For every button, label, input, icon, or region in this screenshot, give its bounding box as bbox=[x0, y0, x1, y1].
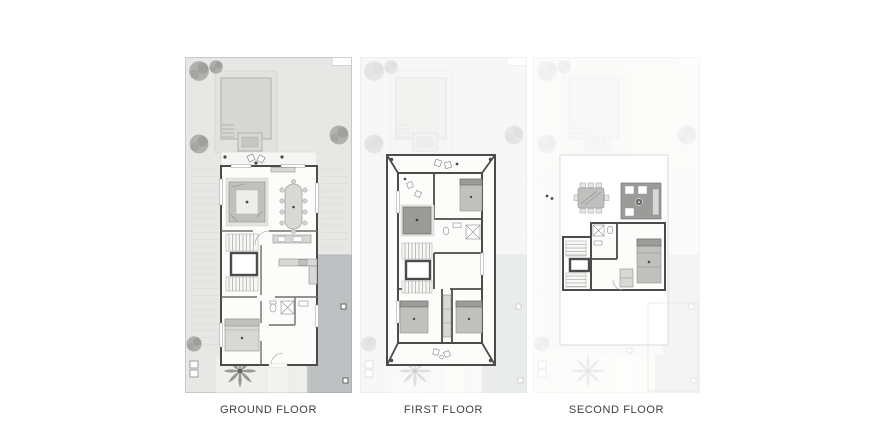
wardrobe bbox=[620, 269, 633, 287]
first-floor-plan bbox=[387, 155, 495, 365]
ground-floor-plan bbox=[220, 152, 319, 368]
console-table bbox=[271, 168, 295, 173]
elevator bbox=[570, 259, 589, 271]
roof-lounge bbox=[621, 183, 661, 219]
family-room-sofa bbox=[401, 205, 434, 236]
master-bed bbox=[460, 179, 482, 211]
panel-first-floor bbox=[360, 57, 527, 393]
rear-terrace bbox=[221, 152, 317, 166]
caption-first-floor: FIRST FLOOR bbox=[360, 404, 527, 416]
floor-plans-figure: GROUND FLOOR FIRST FLOOR SECOND FLOOR bbox=[0, 0, 890, 440]
bedroom-bed bbox=[637, 239, 661, 283]
bedroom-bed-right bbox=[456, 301, 482, 333]
caption-ground-floor: GROUND FLOOR bbox=[185, 404, 352, 416]
guest-bedroom-bed bbox=[225, 319, 259, 351]
elevator bbox=[406, 261, 430, 279]
elevator bbox=[231, 253, 257, 275]
bedroom-bed-left bbox=[400, 301, 428, 333]
caption-second-floor: SECOND FLOOR bbox=[533, 404, 700, 416]
wardrobe-column bbox=[443, 295, 451, 337]
panel-ground-floor bbox=[185, 57, 352, 393]
entry-step bbox=[269, 364, 287, 368]
panel-second-floor bbox=[533, 57, 700, 393]
living-room-sofa bbox=[226, 178, 268, 226]
